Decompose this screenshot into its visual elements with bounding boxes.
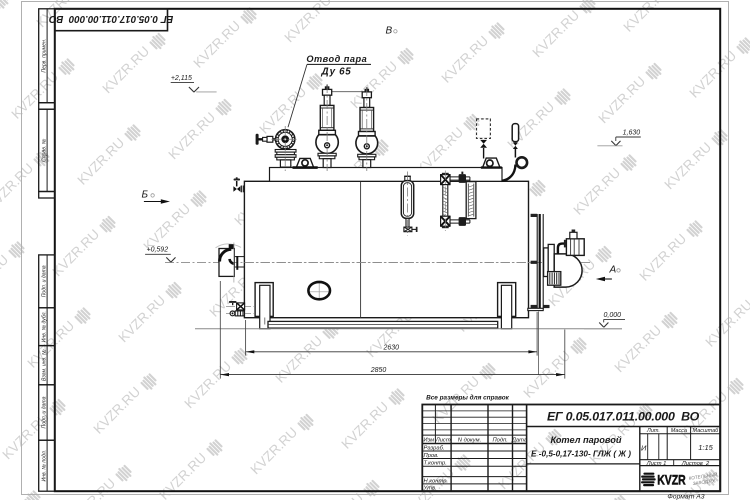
svg-text:Т.контр.: Т.контр.: [424, 461, 447, 467]
svg-text:Подп.: Подп.: [492, 438, 507, 444]
svg-text:Изм: Изм: [423, 438, 434, 444]
svg-text:Перв. примен.: Перв. примен.: [41, 39, 47, 73]
svg-text:И: И: [641, 444, 647, 453]
svg-text:+0,592: +0,592: [146, 247, 168, 254]
svg-text:Н.контр.: Н.контр.: [424, 478, 449, 484]
svg-text:+2,115: +2,115: [171, 75, 192, 82]
svg-text:А: А: [609, 265, 617, 276]
svg-text:1,630: 1,630: [623, 129, 641, 136]
svg-text:ЕГ 0.05.017.011.00.000 ВО: ЕГ 0.05.017.011.00.000 ВО: [49, 13, 174, 24]
svg-text:Разраб.: Разраб.: [424, 445, 445, 451]
svg-text:Е -0,5-0,17-130- ГЛЖ ( Ж ): Е -0,5-0,17-130- ГЛЖ ( Ж ): [531, 450, 631, 459]
svg-text:0,000: 0,000: [604, 312, 622, 319]
svg-text:ЕГ 0.05.017.011.00.000 ВО: ЕГ 0.05.017.011.00.000 ВО: [547, 410, 700, 424]
svg-text:2630: 2630: [383, 344, 400, 351]
svg-text:Ду 65: Ду 65: [321, 67, 352, 78]
svg-text:Масштаб: Масштаб: [693, 428, 720, 434]
svg-text:Дата: Дата: [511, 438, 528, 444]
svg-text:Подп. и дата: Подп. и дата: [41, 396, 47, 428]
svg-text:Инв. № подл.: Инв. № подл.: [41, 450, 47, 482]
svg-text:Пров.: Пров.: [424, 453, 439, 459]
svg-text:Взам. инв. №: Взам. инв. №: [41, 349, 47, 381]
svg-text:Отвод пара: Отвод пара: [306, 54, 367, 64]
svg-text:Утв.: Утв.: [423, 486, 437, 492]
svg-text:В: В: [386, 25, 393, 36]
svg-text:Лист: Лист: [435, 438, 451, 444]
svg-text:Инв. № дубл.: Инв. № дубл.: [41, 311, 47, 342]
svg-text:Лит.: Лит.: [646, 428, 660, 434]
svg-text:Формат А3: Формат А3: [667, 494, 704, 500]
svg-text:Подп. и дата: Подп. и дата: [41, 265, 47, 297]
svg-text:Котел паровой: Котел паровой: [551, 435, 622, 445]
svg-text:KVZR: KVZR: [657, 472, 686, 487]
svg-text:Справ. №: Справ. №: [41, 138, 47, 162]
svg-text:N докум.: N докум.: [458, 438, 481, 444]
svg-text:Все размеры для справок: Все размеры для справок: [426, 393, 510, 401]
svg-text:1:15: 1:15: [698, 443, 713, 452]
svg-text:2850: 2850: [370, 367, 387, 374]
svg-text:Б: Б: [142, 190, 149, 201]
svg-text:Масса: Масса: [671, 428, 687, 434]
